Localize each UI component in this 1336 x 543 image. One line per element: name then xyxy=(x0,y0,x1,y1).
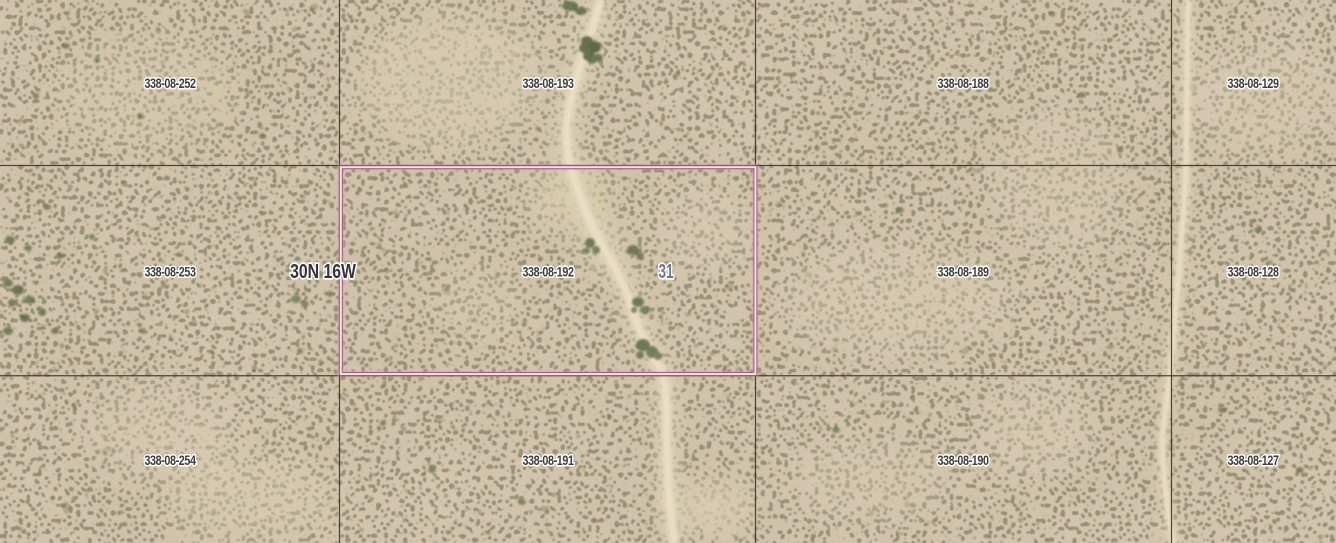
svg-text:338-08-189: 338-08-189 xyxy=(937,264,989,280)
svg-text:338-08-127: 338-08-127 xyxy=(1227,453,1279,469)
svg-text:338-08-190: 338-08-190 xyxy=(937,453,989,469)
svg-text:338-08-191: 338-08-191 xyxy=(522,453,574,469)
svg-text:30N 16W: 30N 16W xyxy=(290,260,356,282)
svg-text:338-08-193: 338-08-193 xyxy=(522,76,574,92)
svg-text:338-08-254: 338-08-254 xyxy=(144,453,196,469)
svg-text:338-08-188: 338-08-188 xyxy=(937,76,989,92)
svg-text:338-08-129: 338-08-129 xyxy=(1227,76,1279,92)
svg-text:31: 31 xyxy=(658,260,674,282)
svg-text:338-08-192: 338-08-192 xyxy=(522,264,574,280)
svg-text:338-08-128: 338-08-128 xyxy=(1227,264,1279,280)
svg-text:338-08-253: 338-08-253 xyxy=(144,264,196,280)
svg-text:338-08-252: 338-08-252 xyxy=(144,76,196,92)
